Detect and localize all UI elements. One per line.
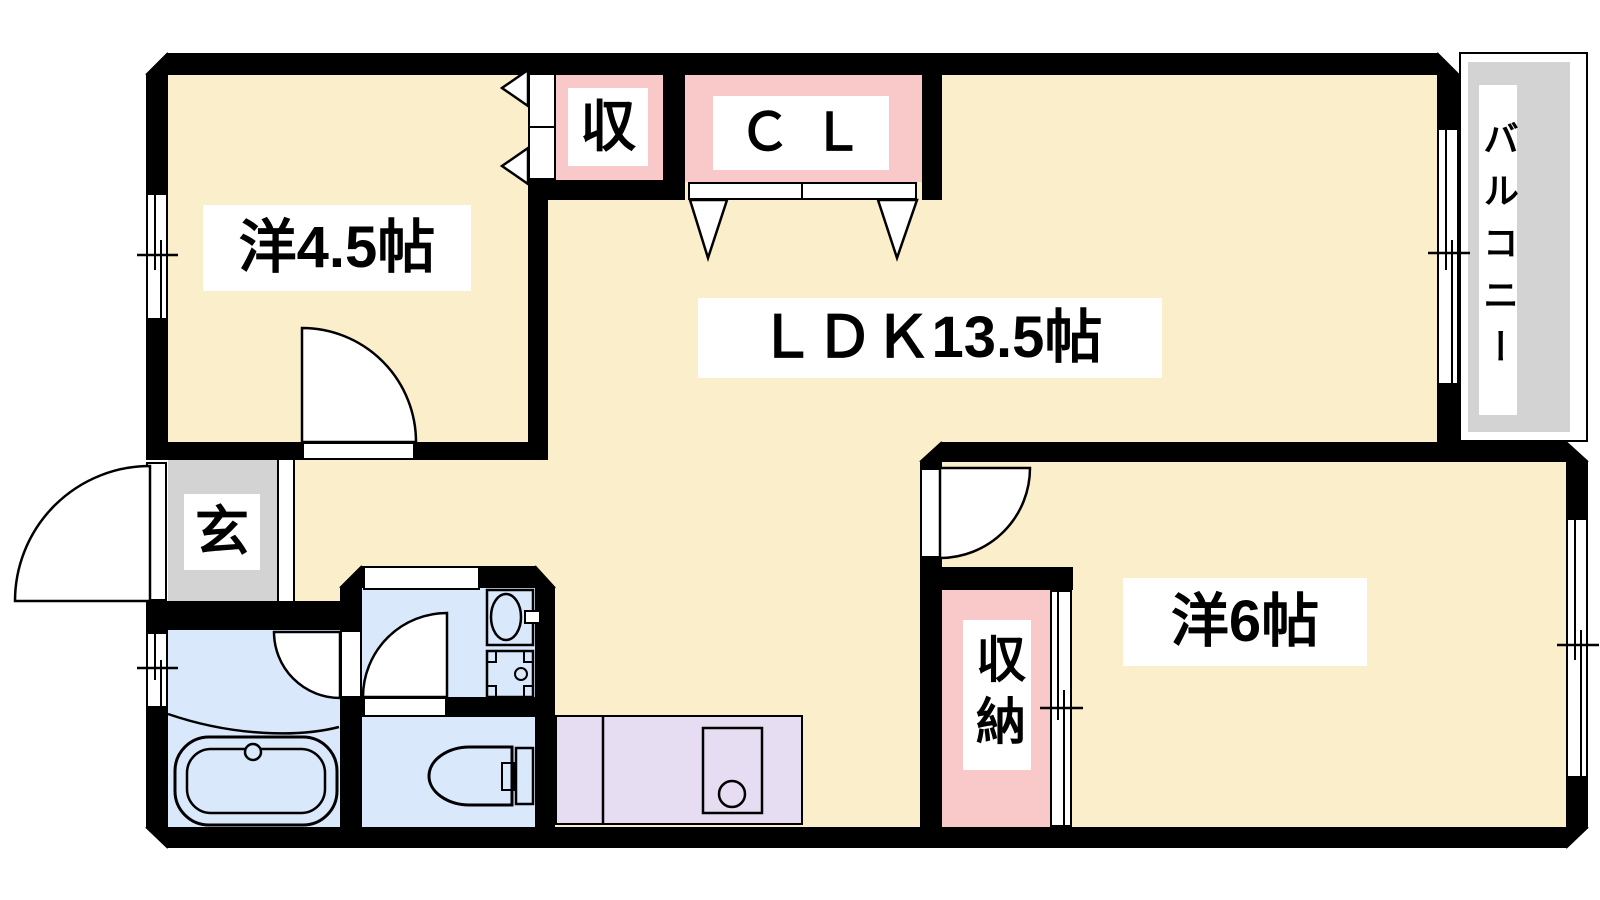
wall-washroom-right: [535, 566, 555, 827]
wall-storage-cl-divider: [663, 75, 685, 200]
room-label-storage-upper: 収: [568, 88, 648, 166]
window-ldk-balcony: [1437, 128, 1459, 385]
opening-washroom: [363, 566, 480, 590]
folding-door-closet-cl: [688, 182, 917, 200]
wall-storage-lower-top: [920, 567, 1073, 590]
wall-western6-top: [920, 442, 1588, 462]
wall-western45-right: [528, 180, 548, 442]
entrance-step: [277, 460, 295, 601]
room-label-western45: 洋4.5帖: [203, 205, 471, 291]
room-label-balcony: バルコニー: [1479, 85, 1517, 415]
kitchen-counter: [555, 715, 803, 825]
door-gap-western6: [920, 468, 942, 558]
wall-cl-right: [922, 75, 942, 200]
toilet-area: [362, 717, 535, 827]
entrance-door-swing: [15, 466, 150, 601]
wall-storage-upper-bottom: [528, 180, 685, 200]
window-western6: [1566, 518, 1588, 778]
room-label-ldk: ＬＤＫ13.5帖: [698, 298, 1162, 378]
window-western45: [146, 193, 168, 320]
wall-bottom: [146, 827, 1588, 848]
entrance-door-leaf: [146, 462, 167, 601]
door-gap-bathroom: [340, 630, 362, 698]
room-label-entrance: 玄: [184, 494, 260, 570]
folding-door-storage-upper: [528, 73, 556, 180]
sliding-door-storage-lower: [1050, 590, 1072, 827]
wall-entrance-bottom: [146, 601, 340, 630]
room-label-storage-lower: 収納: [963, 620, 1031, 770]
bathroom-area: [168, 630, 340, 827]
window-bathroom: [146, 632, 168, 708]
room-label-western6: 洋6帖: [1123, 578, 1367, 666]
wall-top: [146, 53, 1459, 75]
room-label-closet-cl: ＣＬ: [713, 96, 889, 170]
floor-plan: 洋4.5帖 ＬＤＫ13.5帖 洋6帖 収 ＣＬ 玄 収納 バルコニー: [0, 0, 1600, 900]
door-gap-toilet: [363, 697, 447, 717]
washroom-area: [362, 588, 535, 697]
door-gap-western45: [302, 442, 415, 460]
